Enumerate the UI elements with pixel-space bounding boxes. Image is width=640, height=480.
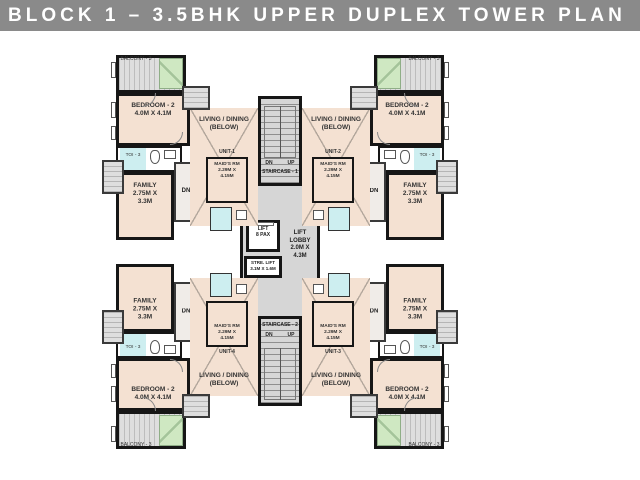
living-line1: LIVING / DINING [298, 372, 374, 380]
bedroom-name: BEDROOM - 2 [114, 386, 192, 394]
toilet-3-label: TOI - 3 [412, 345, 442, 351]
maid-room-label: MAID'S RM 2.29M X 4.15M [206, 324, 248, 342]
bedroom-name: BEDROOM - 2 [114, 102, 192, 110]
service-ledge [102, 310, 124, 344]
bedroom-name: BEDROOM - 2 [368, 102, 446, 110]
lobby-line3: 2.0M X [281, 245, 319, 253]
living-line2: (BELOW) [186, 380, 262, 388]
wc-fixture [150, 340, 160, 354]
unit-2-wing: BALCONY - 3 BEDROOM - 2 4.0M X 4.1M TOI … [308, 50, 448, 240]
maid-toilet-fixture [313, 284, 324, 294]
unit-1-wing: BALCONY - 3 BEDROOM - 2 4.0M X 4.1M TOI … [112, 50, 252, 240]
bedroom-dims: 4.0M X 4.1M [114, 394, 192, 402]
window [111, 426, 116, 442]
bedroom-name: BEDROOM - 2 [368, 386, 446, 394]
staircase-1-divider [280, 106, 281, 158]
maid-toilet-fixture [236, 210, 247, 220]
window [111, 386, 116, 402]
window [444, 426, 449, 442]
toilet-3-label: TOI - 3 [118, 345, 148, 351]
toilet-3-label: TOI - 3 [412, 153, 442, 159]
window [111, 364, 116, 378]
living-dining-label: LIVING / DINING (BELOW) [298, 116, 374, 132]
wc-fixture [400, 340, 410, 354]
staircase-1-up-label: UP [282, 160, 300, 166]
living-line2: (BELOW) [298, 124, 374, 132]
window [111, 62, 116, 78]
window [444, 364, 449, 378]
service-ledge [182, 86, 210, 110]
staircase-1-label: STAIRCASE - 1 [254, 169, 306, 175]
maid-room-label: MAID'S RM 2.29M X 4.15M [312, 324, 354, 342]
unit-number-label: UNIT-3 [310, 349, 356, 355]
balcony-label: BALCONY - 3 [113, 442, 159, 448]
unit-number-label: UNIT-2 [310, 149, 356, 155]
basin-fixture [384, 345, 396, 354]
bedroom-2-label: BEDROOM - 2 4.0M X 4.1M [114, 102, 192, 118]
window [444, 126, 449, 140]
maid-toilet-area [328, 207, 350, 231]
window [444, 102, 449, 118]
planter-box [377, 415, 401, 446]
balcony-label: BALCONY - 3 [401, 442, 447, 448]
window [444, 62, 449, 78]
living-line1: LIVING / DINING [298, 116, 374, 124]
maid-room-label: MAID'S RM 2.29M X 4.15M [312, 162, 354, 180]
family-name: FAMILY [114, 298, 176, 306]
window [111, 102, 116, 118]
staircase-1-dn-label: DN [260, 160, 278, 166]
balcony-label: BALCONY - 3 [113, 56, 159, 62]
service-ledge [350, 86, 378, 110]
toilet-3-label: TOI - 3 [118, 153, 148, 159]
planter-box [377, 58, 401, 89]
window [111, 126, 116, 140]
bedroom-2-label: BEDROOM - 2 4.0M X 4.1M [114, 386, 192, 402]
lobby-line4: 4.3M [281, 253, 319, 261]
bedroom-2-label: BEDROOM - 2 4.0M X 4.1M [368, 102, 446, 118]
balcony-label: BALCONY - 3 [401, 56, 447, 62]
living-dining-label: LIVING / DINING (BELOW) [186, 116, 262, 132]
basin-fixture [164, 150, 176, 159]
living-dining-label: LIVING / DINING (BELOW) [298, 372, 374, 388]
service-ledge [102, 160, 124, 194]
unit-number-label: UNIT-4 [204, 349, 250, 355]
page-title: BLOCK 1 – 3.5BHK UPPER DUPLEX TOWER PLAN [0, 5, 626, 27]
maid-toilet-area [210, 207, 232, 231]
living-line1: LIVING / DINING [186, 372, 262, 380]
planter-box [159, 58, 183, 89]
staircase-2-label: STAIRCASE - 2 [254, 322, 306, 328]
service-ledge [182, 394, 210, 418]
living-line2: (BELOW) [298, 380, 374, 388]
service-ledge [436, 310, 458, 344]
service-ledge [350, 394, 378, 418]
bedroom-dims: 4.0M X 4.1M [114, 110, 192, 118]
maid-toilet-area [210, 273, 232, 297]
family-dims2: 3.3M [384, 198, 446, 206]
maid-toilet-fixture [313, 210, 324, 220]
planter-box [159, 415, 183, 446]
maid-toilet-fixture [236, 284, 247, 294]
maid-toilet-area [328, 273, 350, 297]
unit-number-label: UNIT-1 [204, 149, 250, 155]
basin-fixture [384, 150, 396, 159]
service-ledge [436, 160, 458, 194]
basin-fixture [164, 345, 176, 354]
maid-dims2: 4.15M [206, 336, 248, 342]
wc-fixture [400, 150, 410, 164]
living-line1: LIVING / DINING [186, 116, 262, 124]
unit-3-wing: BALCONY - 3 BEDROOM - 2 4.0M X 4.1M TOI … [308, 264, 448, 454]
staircase-2-up-label: UP [282, 332, 300, 338]
window [444, 386, 449, 402]
staircase-2-dn-label: DN [260, 332, 278, 338]
living-line2: (BELOW) [186, 124, 262, 132]
living-dining-label: LIVING / DINING (BELOW) [186, 372, 262, 388]
maid-dims2: 4.15M [312, 336, 354, 342]
floor-plan-page: BLOCK 1 – 3.5BHK UPPER DUPLEX TOWER PLAN… [0, 0, 640, 480]
staircase-2-divider [280, 348, 281, 400]
family-dims2: 3.3M [114, 198, 176, 206]
maid-room-label: MAID'S RM 2.29M X 4.15M [206, 162, 248, 180]
bedroom-dims: 4.0M X 4.1M [368, 110, 446, 118]
maid-dims2: 4.15M [312, 174, 354, 180]
family-name: FAMILY [384, 298, 446, 306]
maid-dims2: 4.15M [206, 174, 248, 180]
title-bar: BLOCK 1 – 3.5BHK UPPER DUPLEX TOWER PLAN [0, 0, 640, 31]
bedroom-2-label: BEDROOM - 2 4.0M X 4.1M [368, 386, 446, 402]
wc-fixture [150, 150, 160, 164]
unit-4-wing: BALCONY - 3 BEDROOM - 2 4.0M X 4.1M TOI … [112, 264, 252, 454]
